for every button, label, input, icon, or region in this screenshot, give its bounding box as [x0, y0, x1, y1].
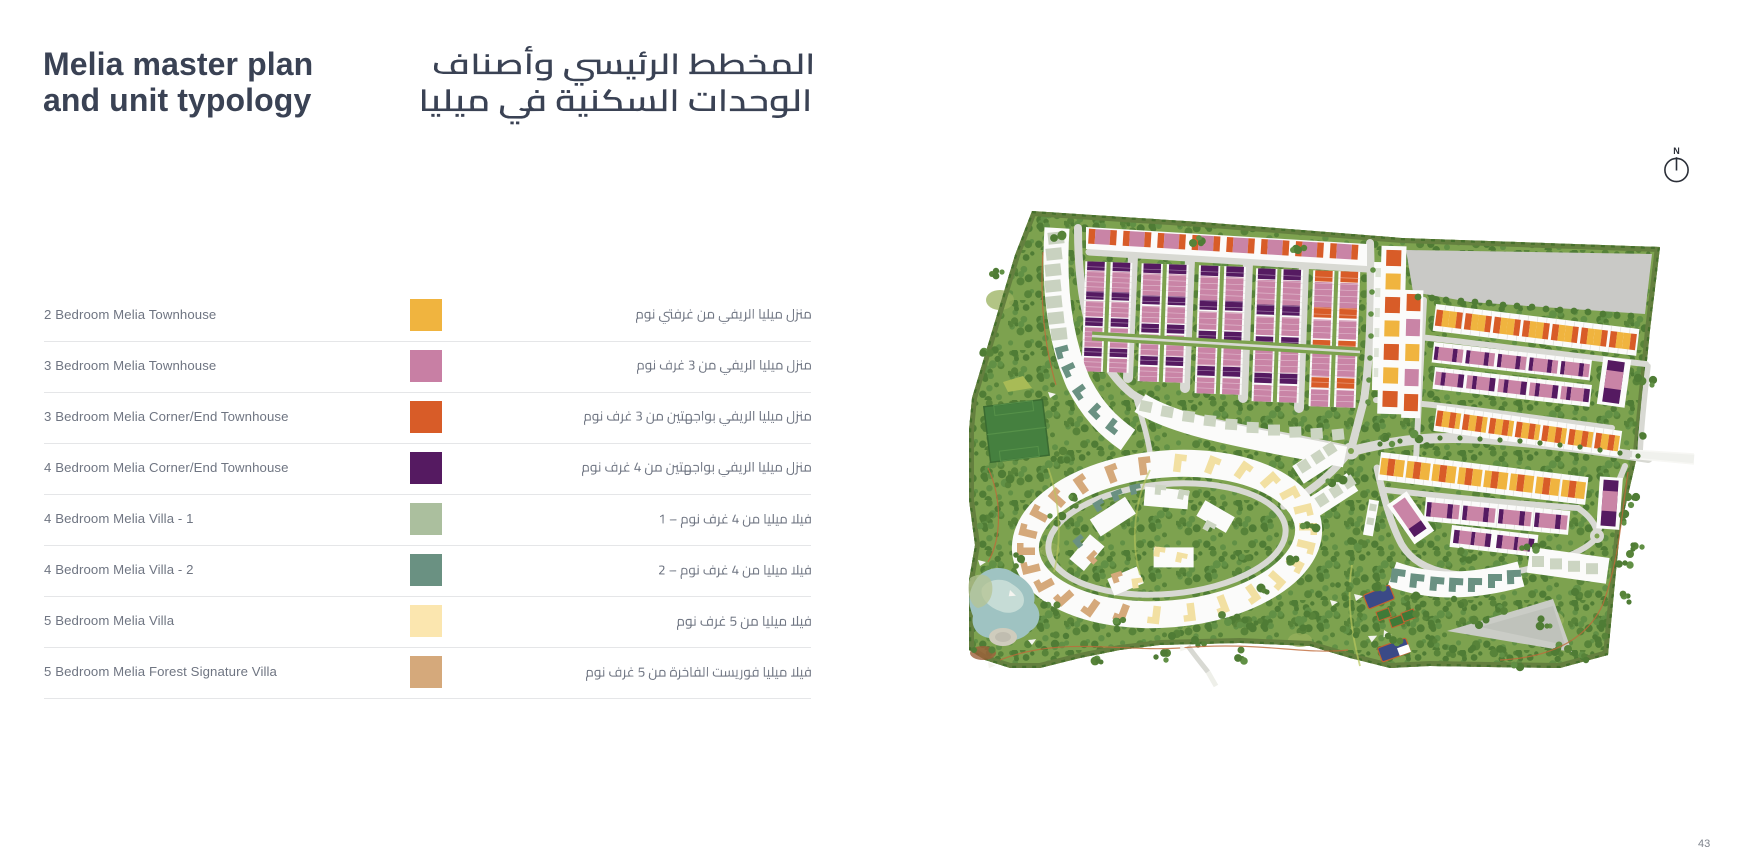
svg-text:N: N	[1673, 146, 1680, 156]
